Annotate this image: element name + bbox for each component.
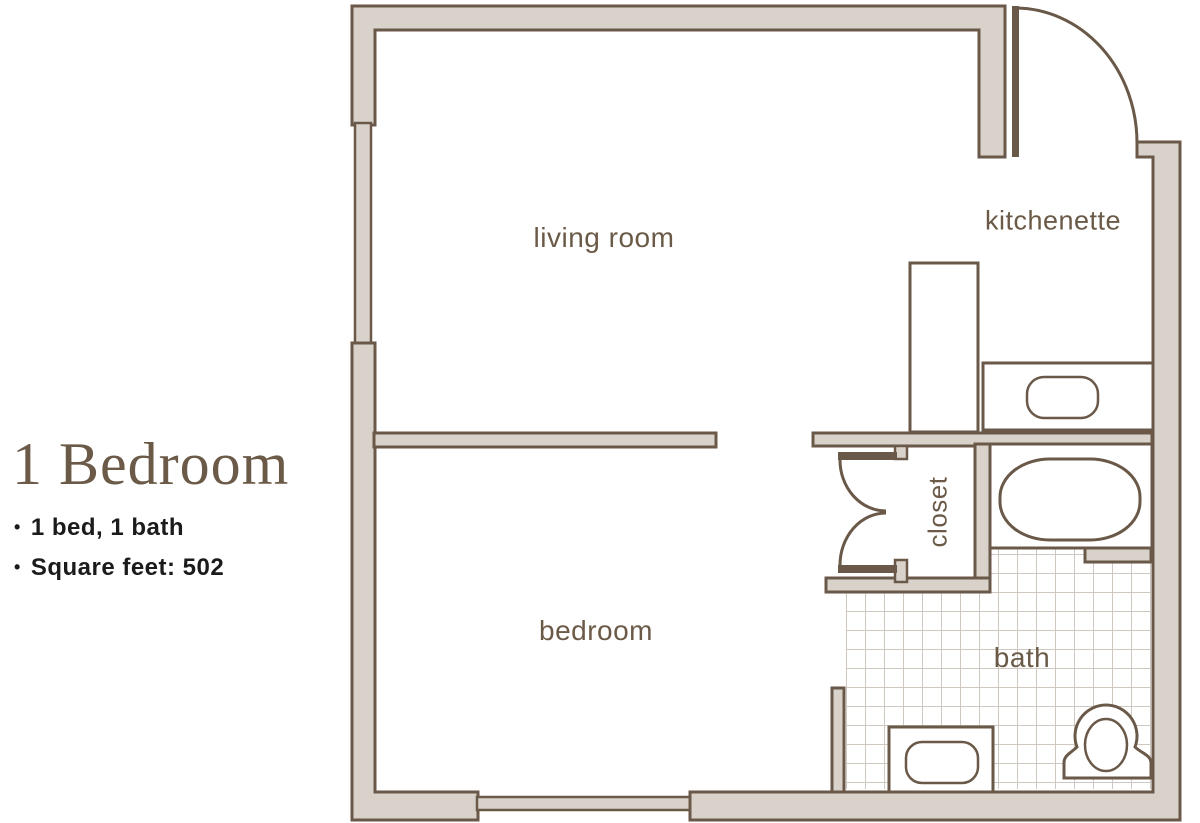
bath-vanity-sink <box>906 742 978 783</box>
entry-door-leaf <box>1012 6 1019 157</box>
detail-beds-baths-text: 1 bed, 1 bath <box>31 514 184 541</box>
closet-door-jamb-top <box>838 452 897 460</box>
bathtub <box>1000 459 1140 540</box>
wall-bath-left-stub <box>832 688 844 792</box>
plan-title: 1 Bedroom <box>12 430 289 499</box>
living-room-label: living room <box>534 222 675 254</box>
entry-door-swing-arc <box>1015 8 1137 143</box>
detail-square-feet: •Square feet: 502 <box>14 554 224 582</box>
wall-left-lower-and-bottom-left <box>352 343 478 820</box>
window-left <box>355 123 371 345</box>
bullet-icon: • <box>14 517 21 537</box>
bedroom-label: bedroom <box>539 615 653 647</box>
wall-livingroom-bedroom <box>374 433 716 447</box>
floor-plan-drawing <box>0 0 1200 823</box>
kitchenette-label: kitchenette <box>985 206 1121 237</box>
detail-beds-baths: •1 bed, 1 bath <box>14 514 224 542</box>
window-bottom <box>477 797 691 810</box>
floor-plan-page: living room kitchenette closet bath bedr… <box>0 0 1200 823</box>
closet-door-jamb-bottom <box>838 565 897 573</box>
wall-top-and-left-upper <box>352 6 1005 157</box>
bullet-icon: • <box>14 557 21 577</box>
closet-door-arc-top <box>840 460 886 511</box>
wall-closet-right <box>975 444 990 592</box>
bath-label: bath <box>994 642 1051 674</box>
toilet-bowl <box>1085 719 1127 771</box>
detail-square-feet-text: Square feet: 502 <box>31 554 224 581</box>
plan-details: •1 bed, 1 bath •Square feet: 502 <box>14 514 224 594</box>
kitchenette-sink <box>1027 377 1098 418</box>
closet-door-arc-bottom <box>840 513 886 565</box>
kitchenette-cabinet <box>910 263 978 432</box>
closet-label: closet <box>923 477 954 548</box>
